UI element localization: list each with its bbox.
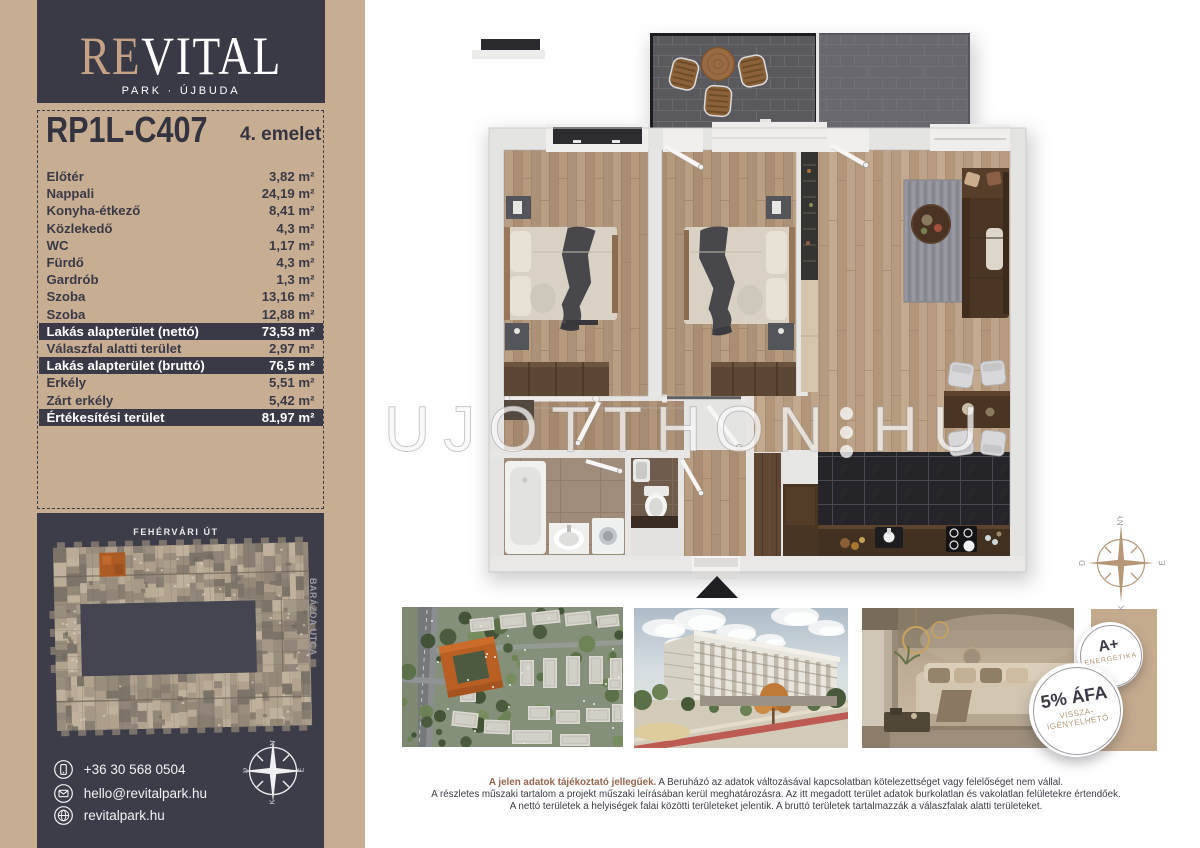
svg-text:NY: NY (270, 740, 277, 746)
svg-text:D: D (243, 768, 250, 773)
svg-text:É: É (297, 767, 306, 772)
svg-text:K: K (270, 799, 277, 804)
svg-text:NY: NY (1116, 516, 1125, 526)
svg-text:É: É (1158, 560, 1167, 565)
svg-text:K: K (1117, 605, 1126, 611)
